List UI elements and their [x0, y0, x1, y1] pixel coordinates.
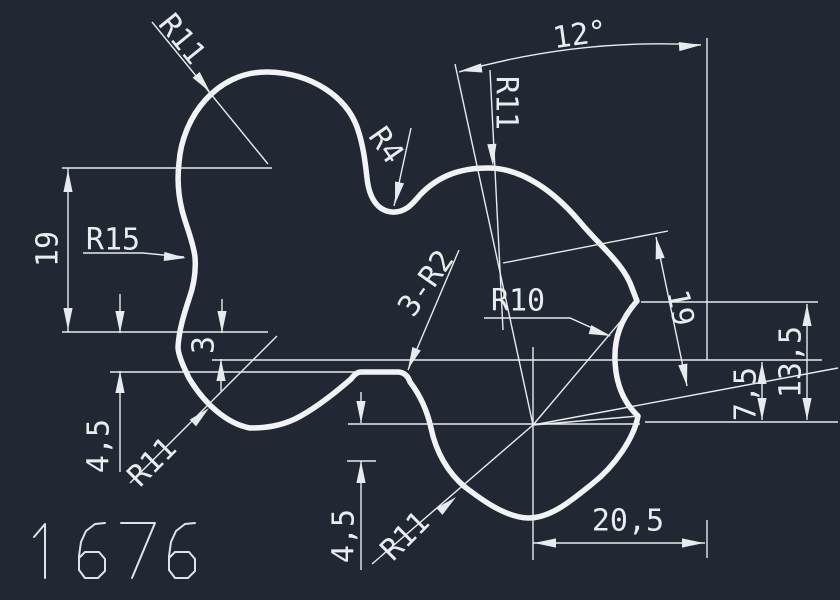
- arrowhead: [459, 63, 482, 75]
- ext-line-19-right-top: [503, 231, 668, 263]
- label-dim-4-5-mid[interactable]: 4,5: [327, 509, 362, 563]
- label-dim-4-5-left[interactable]: 4,5: [82, 419, 117, 473]
- cad-drawing: R11R412°R11R151934,5R113-R2R10197,513,54…: [0, 0, 840, 600]
- arrowhead: [216, 359, 225, 381]
- arrowhead: [115, 371, 124, 393]
- label-r11-bottom-left[interactable]: R11: [121, 431, 184, 494]
- label-three-r2[interactable]: 3-R2: [391, 244, 461, 323]
- label-dim-7-5[interactable]: 7,5: [729, 367, 764, 421]
- arrowhead: [679, 40, 702, 51]
- arrowhead: [436, 494, 459, 515]
- arrowhead: [63, 308, 72, 330]
- drawing-number-digit: [121, 523, 155, 578]
- arrowhead: [404, 347, 421, 371]
- arrowhead: [802, 398, 811, 420]
- label-dim-13-5[interactable]: 13,5: [774, 326, 809, 398]
- arrowhead: [115, 311, 124, 333]
- arrowhead: [678, 364, 691, 387]
- cad-drawing-canvas[interactable]: R11R412°R11R151934,5R113-R2R10197,513,54…: [0, 0, 840, 600]
- arrowhead: [651, 236, 664, 259]
- radius-line-notch-top: [533, 302, 637, 425]
- arrowhead: [190, 405, 212, 427]
- drawing-number: [34, 523, 195, 578]
- dimension-lines: [62, 22, 838, 570]
- label-r15[interactable]: R15: [86, 223, 140, 258]
- label-dim-19-left[interactable]: 19: [31, 231, 66, 267]
- label-r11-top-left[interactable]: R11: [151, 7, 212, 71]
- arrowhead: [589, 325, 613, 340]
- label-angle-12[interactable]: 12°: [551, 14, 610, 56]
- arrowhead: [802, 304, 811, 326]
- arrowhead: [356, 401, 365, 423]
- arrowhead: [682, 538, 704, 547]
- label-dim-19-right[interactable]: 19: [659, 287, 700, 329]
- arrowhead: [164, 252, 187, 263]
- drawing-number-digit: [34, 524, 45, 578]
- arrowhead: [391, 182, 405, 205]
- arrowhead: [534, 538, 556, 547]
- arrowhead: [487, 144, 497, 166]
- drawing-number-digit: [169, 523, 195, 578]
- drawing-number-digit: [79, 523, 105, 578]
- dimension-labels: R11R412°R11R151934,5R113-R2R10197,513,54…: [31, 7, 809, 568]
- label-r11-upper-mid[interactable]: R11: [489, 76, 524, 130]
- label-r10[interactable]: R10: [491, 284, 545, 319]
- arrowhead: [217, 311, 226, 333]
- label-r11-bottom-mid[interactable]: R11: [374, 505, 437, 568]
- label-dim-3[interactable]: 3: [187, 336, 222, 354]
- arrowhead: [63, 170, 72, 192]
- arrowhead: [356, 461, 365, 483]
- label-dim-20-5[interactable]: 20,5: [592, 504, 664, 539]
